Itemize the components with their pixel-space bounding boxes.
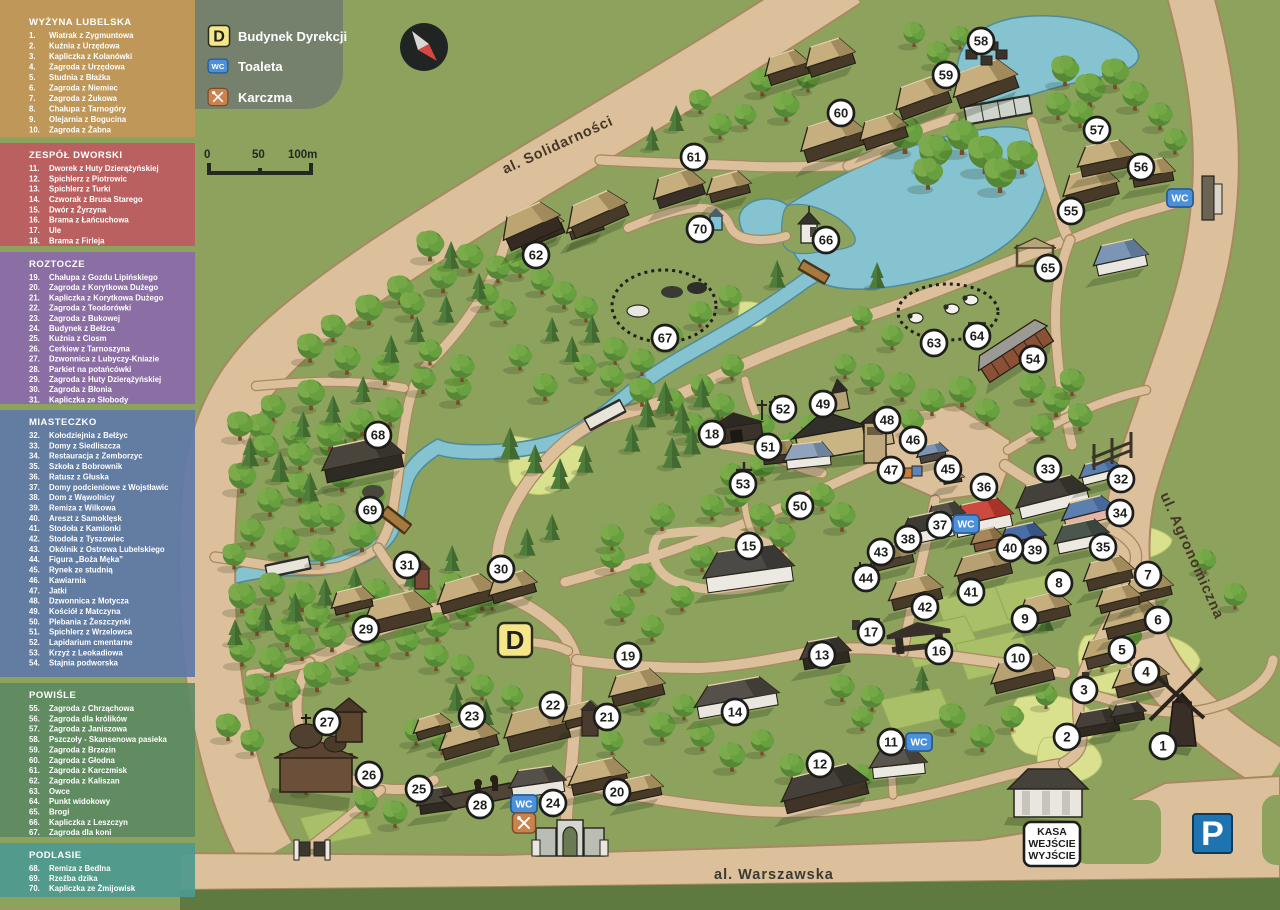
svg-text:Stodoła z Kamionki: Stodoła z Kamionki [49, 524, 121, 533]
svg-text:14: 14 [728, 705, 743, 720]
svg-text:62.: 62. [29, 777, 40, 786]
svg-text:Lapidarium cmentarne: Lapidarium cmentarne [49, 638, 133, 647]
svg-text:36: 36 [977, 480, 991, 495]
svg-text:68: 68 [371, 428, 385, 443]
svg-text:23: 23 [465, 709, 479, 724]
svg-text:70: 70 [693, 222, 707, 237]
svg-text:Kościół z Matczyna: Kościół z Matczyna [49, 607, 121, 616]
svg-text:38.: 38. [29, 493, 40, 502]
svg-text:Toaleta: Toaleta [238, 59, 283, 74]
svg-text:61: 61 [687, 150, 701, 165]
svg-text:WEJŚCIE: WEJŚCIE [1028, 837, 1075, 850]
svg-text:Stajnia podworska: Stajnia podworska [49, 659, 119, 668]
svg-text:44: 44 [859, 571, 874, 586]
svg-text:33.: 33. [29, 441, 40, 450]
svg-text:3.: 3. [29, 52, 36, 61]
svg-text:Jatki: Jatki [49, 586, 67, 595]
svg-text:Pszczoły - Skansenowa pasieka: Pszczoły - Skansenowa pasieka [49, 735, 168, 744]
svg-text:41.: 41. [29, 524, 40, 533]
svg-text:Kołodziejnia z Bełżyc: Kołodziejnia z Bełżyc [49, 431, 129, 440]
svg-text:Zagroda z Karczmisk: Zagroda z Karczmisk [49, 766, 128, 775]
svg-text:Kapliczka ze Żmijowisk: Kapliczka ze Żmijowisk [49, 884, 136, 893]
svg-text:Remiza z Bedlna: Remiza z Bedlna [49, 864, 111, 873]
svg-text:WYŻYNA LUBELSKA: WYŻYNA LUBELSKA [29, 17, 132, 28]
svg-text:2: 2 [1063, 730, 1071, 745]
svg-text:59: 59 [939, 68, 953, 83]
svg-text:Zagroda dla królików: Zagroda dla królików [49, 714, 128, 723]
svg-text:4.: 4. [29, 63, 36, 72]
svg-text:0: 0 [204, 149, 210, 161]
svg-text:Ule: Ule [49, 226, 62, 235]
svg-text:65: 65 [1041, 261, 1055, 276]
svg-text:Spichlerz z Wrzelowca: Spichlerz z Wrzelowca [49, 628, 133, 637]
svg-text:Areszt z Samoklęsk: Areszt z Samoklęsk [49, 514, 122, 523]
svg-text:Kuźnia z Urzędowa: Kuźnia z Urzędowa [49, 42, 120, 51]
svg-text:Olejarnia z Bogucina: Olejarnia z Bogucina [49, 115, 127, 124]
svg-text:7: 7 [1144, 568, 1152, 583]
svg-text:1: 1 [1159, 739, 1167, 754]
svg-text:30: 30 [494, 562, 508, 577]
svg-text:Kapliczka z Korytkowa Dużego: Kapliczka z Korytkowa Dużego [49, 293, 164, 302]
svg-text:53: 53 [736, 477, 750, 492]
svg-text:Restauracja z Zemborzyc: Restauracja z Zemborzyc [49, 452, 143, 461]
svg-text:Dworek z Huty Dzierążyńskiej: Dworek z Huty Dzierążyńskiej [49, 164, 159, 173]
svg-text:21: 21 [600, 710, 614, 725]
svg-text:PODLASIE: PODLASIE [29, 850, 82, 861]
svg-text:8.: 8. [29, 105, 36, 114]
svg-text:Budynek Dyrekcji: Budynek Dyrekcji [238, 29, 347, 44]
svg-text:20: 20 [610, 785, 624, 800]
svg-text:Figura „Boża Męka”: Figura „Boża Męka” [49, 555, 123, 564]
svg-text:10: 10 [1011, 651, 1025, 666]
svg-text:38: 38 [901, 532, 915, 547]
svg-text:3: 3 [1080, 683, 1088, 698]
svg-text:39.: 39. [29, 504, 40, 513]
svg-text:Czworak z Brusa Starego: Czworak z Brusa Starego [49, 195, 143, 204]
svg-text:Dzwonnica z Lubyczy-Kniazie: Dzwonnica z Lubyczy-Kniazie [49, 355, 160, 364]
svg-text:46: 46 [906, 433, 920, 448]
svg-text:55: 55 [1064, 204, 1078, 219]
svg-text:51.: 51. [29, 628, 40, 637]
svg-text:25.: 25. [29, 334, 40, 343]
svg-text:69: 69 [363, 503, 377, 518]
svg-text:Brama z Firleja: Brama z Firleja [49, 236, 105, 245]
svg-text:48: 48 [880, 413, 894, 428]
svg-text:39: 39 [1028, 543, 1042, 558]
svg-text:10.: 10. [29, 126, 40, 135]
svg-text:al. Warszawska: al. Warszawska [714, 867, 834, 883]
svg-text:Budynek z Bełżca: Budynek z Bełżca [49, 324, 116, 333]
svg-text:47.: 47. [29, 586, 40, 595]
svg-text:Kapliczka z Leszczyn: Kapliczka z Leszczyn [49, 818, 128, 827]
svg-text:42: 42 [918, 600, 932, 615]
svg-text:26: 26 [362, 768, 376, 783]
svg-text:WC: WC [515, 800, 533, 811]
svg-text:50: 50 [793, 499, 807, 514]
svg-text:29: 29 [359, 622, 373, 637]
svg-text:13: 13 [815, 648, 829, 663]
svg-text:30.: 30. [29, 385, 40, 394]
svg-text:63: 63 [927, 336, 941, 351]
svg-text:48.: 48. [29, 597, 40, 606]
svg-text:Chałupa z Tarnogóry: Chałupa z Tarnogóry [49, 105, 127, 114]
svg-text:49: 49 [816, 397, 830, 412]
svg-text:15: 15 [742, 539, 756, 554]
svg-text:6: 6 [1154, 613, 1162, 628]
svg-text:36.: 36. [29, 472, 40, 481]
svg-text:43.: 43. [29, 545, 40, 554]
svg-text:53.: 53. [29, 648, 40, 657]
svg-text:D: D [213, 28, 225, 46]
svg-text:Zagroda z Niemiec: Zagroda z Niemiec [49, 84, 119, 93]
svg-text:Cerkiew z Tarnoszyna: Cerkiew z Tarnoszyna [49, 344, 131, 353]
svg-text:23.: 23. [29, 314, 40, 323]
svg-text:57.: 57. [29, 725, 40, 734]
svg-text:18: 18 [705, 427, 719, 442]
svg-text:50: 50 [252, 149, 265, 161]
svg-text:24: 24 [546, 796, 561, 811]
svg-text:17.: 17. [29, 226, 40, 235]
svg-text:Zagroda z Bukowej: Zagroda z Bukowej [49, 314, 120, 323]
svg-text:40: 40 [1003, 541, 1017, 556]
svg-text:18.: 18. [29, 236, 40, 245]
svg-text:100m: 100m [288, 149, 317, 161]
svg-text:Punkt widokowy: Punkt widokowy [49, 797, 111, 806]
svg-text:60: 60 [834, 106, 848, 121]
svg-text:11.: 11. [29, 164, 39, 173]
svg-text:22.: 22. [29, 304, 40, 313]
svg-text:Parkiet na potańcówki: Parkiet na potańcówki [49, 365, 131, 374]
svg-text:2.: 2. [29, 42, 36, 51]
svg-text:50.: 50. [29, 617, 40, 626]
svg-text:41: 41 [964, 585, 978, 600]
svg-text:WC: WC [1171, 194, 1189, 205]
svg-text:Zagroda z Teodorówki: Zagroda z Teodorówki [49, 304, 131, 313]
svg-text:WYJŚCIE: WYJŚCIE [1028, 849, 1075, 862]
svg-text:63.: 63. [29, 787, 40, 796]
svg-text:67: 67 [658, 331, 672, 346]
svg-text:68.: 68. [29, 864, 40, 873]
svg-text:19: 19 [621, 649, 635, 664]
svg-text:Kapliczka ze Słobody: Kapliczka ze Słobody [49, 395, 129, 404]
svg-text:32.: 32. [29, 431, 40, 440]
svg-text:Brama z Łańcuchowa: Brama z Łańcuchowa [49, 216, 129, 225]
svg-text:66.: 66. [29, 818, 40, 827]
svg-text:21.: 21. [29, 293, 40, 302]
svg-text:37.: 37. [29, 483, 40, 492]
svg-text:66: 66 [819, 233, 833, 248]
svg-text:19.: 19. [29, 273, 40, 282]
svg-text:Domy z Siedliszcza: Domy z Siedliszcza [49, 441, 121, 450]
svg-text:Zagroda z Janiszowa: Zagroda z Janiszowa [49, 725, 128, 734]
svg-text:15.: 15. [29, 205, 40, 214]
svg-text:58: 58 [974, 34, 988, 49]
svg-text:Okólnik z Ostrowa Lubelskiego: Okólnik z Ostrowa Lubelskiego [49, 545, 165, 554]
svg-text:59.: 59. [29, 745, 40, 754]
svg-text:Ratusz z Głuska: Ratusz z Głuska [49, 472, 109, 481]
svg-text:7.: 7. [29, 94, 36, 103]
svg-text:67.: 67. [29, 828, 40, 837]
svg-text:Brogi: Brogi [49, 808, 69, 817]
svg-text:37: 37 [933, 518, 947, 533]
svg-text:61.: 61. [29, 766, 40, 775]
svg-text:64: 64 [970, 329, 985, 344]
svg-text:43: 43 [874, 545, 888, 560]
svg-text:34: 34 [1113, 506, 1128, 521]
svg-text:Domy podcieniowe z Wojstławic: Domy podcieniowe z Wojstławic [49, 483, 169, 492]
svg-text:Kuźnia z Ciosm: Kuźnia z Ciosm [49, 334, 107, 343]
svg-text:33: 33 [1041, 462, 1055, 477]
svg-text:5: 5 [1118, 643, 1126, 658]
svg-text:Karczma: Karczma [238, 90, 293, 105]
svg-text:56.: 56. [29, 714, 40, 723]
svg-text:Kawiarnia: Kawiarnia [49, 576, 86, 585]
svg-text:Rzeźba dzika: Rzeźba dzika [49, 874, 98, 883]
svg-text:49.: 49. [29, 607, 40, 616]
svg-text:14.: 14. [29, 195, 40, 204]
svg-text:Zagroda z Żukowa: Zagroda z Żukowa [49, 94, 118, 103]
svg-text:32: 32 [1114, 472, 1128, 487]
svg-text:62: 62 [529, 248, 543, 263]
svg-text:WC: WC [212, 62, 225, 71]
svg-text:57: 57 [1090, 123, 1104, 138]
svg-text:Dzwonnica z Motycza: Dzwonnica z Motycza [49, 597, 129, 606]
svg-text:Spichlerz z Piotrowic: Spichlerz z Piotrowic [49, 174, 128, 183]
svg-text:27: 27 [320, 715, 334, 730]
svg-text:8: 8 [1055, 576, 1063, 591]
svg-text:P: P [1201, 815, 1224, 853]
svg-text:13.: 13. [29, 185, 40, 194]
svg-text:1.: 1. [29, 31, 36, 40]
svg-text:6.: 6. [29, 84, 36, 93]
svg-text:46.: 46. [29, 576, 40, 585]
svg-text:Dwór z Żyrzyna: Dwór z Żyrzyna [49, 205, 107, 214]
svg-text:47: 47 [884, 463, 898, 478]
svg-text:58.: 58. [29, 735, 40, 744]
svg-text:Zagroda z Huty Dzierążyńskiej: Zagroda z Huty Dzierążyńskiej [49, 375, 161, 384]
svg-text:52.: 52. [29, 638, 40, 647]
svg-text:45.: 45. [29, 566, 40, 575]
svg-text:KASA: KASA [1037, 826, 1067, 838]
svg-text:34.: 34. [29, 452, 40, 461]
svg-text:52: 52 [776, 402, 790, 417]
svg-text:Wiatrak z Zygmuntowa: Wiatrak z Zygmuntowa [49, 31, 134, 40]
svg-text:Szkoła z Bobrownik: Szkoła z Bobrownik [49, 462, 123, 471]
svg-text:17: 17 [864, 625, 878, 640]
svg-text:Zagroda z Błonia: Zagroda z Błonia [49, 385, 112, 394]
svg-text:20.: 20. [29, 283, 40, 292]
svg-text:Spichlerz z Turki: Spichlerz z Turki [49, 185, 110, 194]
svg-text:22: 22 [546, 698, 560, 713]
svg-text:Zagroda z Brzezin: Zagroda z Brzezin [49, 745, 116, 754]
svg-text:28.: 28. [29, 365, 40, 374]
svg-text:31.: 31. [29, 395, 40, 404]
svg-text:Plebania z Żeszczynki: Plebania z Żeszczynki [49, 617, 130, 626]
svg-text:54.: 54. [29, 659, 40, 668]
svg-text:51: 51 [761, 440, 775, 455]
svg-text:Zagroda z Kaliszan: Zagroda z Kaliszan [49, 777, 120, 786]
svg-text:60.: 60. [29, 756, 40, 765]
svg-text:12.: 12. [29, 174, 40, 183]
svg-text:44.: 44. [29, 555, 40, 564]
svg-text:35.: 35. [29, 462, 40, 471]
svg-text:69.: 69. [29, 874, 40, 883]
svg-text:40.: 40. [29, 514, 40, 523]
svg-text:Zagroda z Korytkowa Dużego: Zagroda z Korytkowa Dużego [49, 283, 158, 292]
svg-text:9: 9 [1021, 612, 1029, 627]
svg-text:ROZTOCZE: ROZTOCZE [29, 259, 85, 270]
svg-text:WC: WC [957, 520, 975, 531]
svg-text:Zagroda dla koni: Zagroda dla koni [49, 828, 111, 837]
svg-text:29.: 29. [29, 375, 40, 384]
svg-text:Chałupa z Gozdu Lipińskiego: Chałupa z Gozdu Lipińskiego [49, 273, 158, 282]
svg-text:Zagroda z Żabna: Zagroda z Żabna [49, 126, 112, 135]
svg-text:Owce: Owce [49, 787, 70, 796]
svg-text:Rynek ze studnią: Rynek ze studnią [49, 566, 113, 575]
svg-text:9.: 9. [29, 115, 36, 124]
svg-text:Studnia z Błażka: Studnia z Błażka [49, 73, 111, 82]
svg-text:54: 54 [1026, 352, 1041, 367]
svg-text:64.: 64. [29, 797, 40, 806]
svg-text:42.: 42. [29, 535, 40, 544]
svg-text:MIASTECZKO: MIASTECZKO [29, 417, 97, 428]
svg-text:65.: 65. [29, 808, 40, 817]
svg-text:Kapliczka z Kolanówki: Kapliczka z Kolanówki [49, 52, 132, 61]
svg-text:26.: 26. [29, 344, 40, 353]
svg-text:45: 45 [941, 462, 955, 477]
svg-text:27.: 27. [29, 355, 40, 364]
svg-text:WC: WC [910, 738, 928, 749]
svg-text:D: D [506, 625, 525, 655]
svg-text:4: 4 [1142, 665, 1150, 680]
svg-text:Zagroda z Urzędowa: Zagroda z Urzędowa [49, 63, 125, 72]
svg-text:Remiza z Wilkowa: Remiza z Wilkowa [49, 504, 116, 513]
svg-text:55.: 55. [29, 704, 40, 713]
svg-text:11: 11 [884, 735, 898, 750]
svg-text:Dom z Wąwolnicy: Dom z Wąwolnicy [49, 493, 116, 502]
svg-text:ZESPÓŁ DWORSKI: ZESPÓŁ DWORSKI [29, 149, 123, 161]
svg-text:Zagroda z Chrząchowa: Zagroda z Chrząchowa [49, 704, 135, 713]
svg-text:16: 16 [932, 644, 946, 659]
svg-text:12: 12 [813, 757, 827, 772]
svg-text:24.: 24. [29, 324, 40, 333]
svg-text:5.: 5. [29, 73, 36, 82]
svg-text:Stodoła z Tyszowiec: Stodoła z Tyszowiec [49, 535, 125, 544]
svg-text:Krzyż z Leokadiowa: Krzyż z Leokadiowa [49, 648, 123, 657]
svg-text:Zagroda z Głodna: Zagroda z Głodna [49, 756, 116, 765]
svg-text:70.: 70. [29, 884, 40, 893]
svg-text:28: 28 [473, 798, 487, 813]
svg-text:35: 35 [1096, 540, 1110, 555]
svg-text:POWIŚLE: POWIŚLE [29, 689, 76, 701]
svg-text:25: 25 [412, 782, 426, 797]
svg-text:31: 31 [400, 558, 414, 573]
svg-text:16.: 16. [29, 216, 40, 225]
svg-text:56: 56 [1134, 160, 1148, 175]
